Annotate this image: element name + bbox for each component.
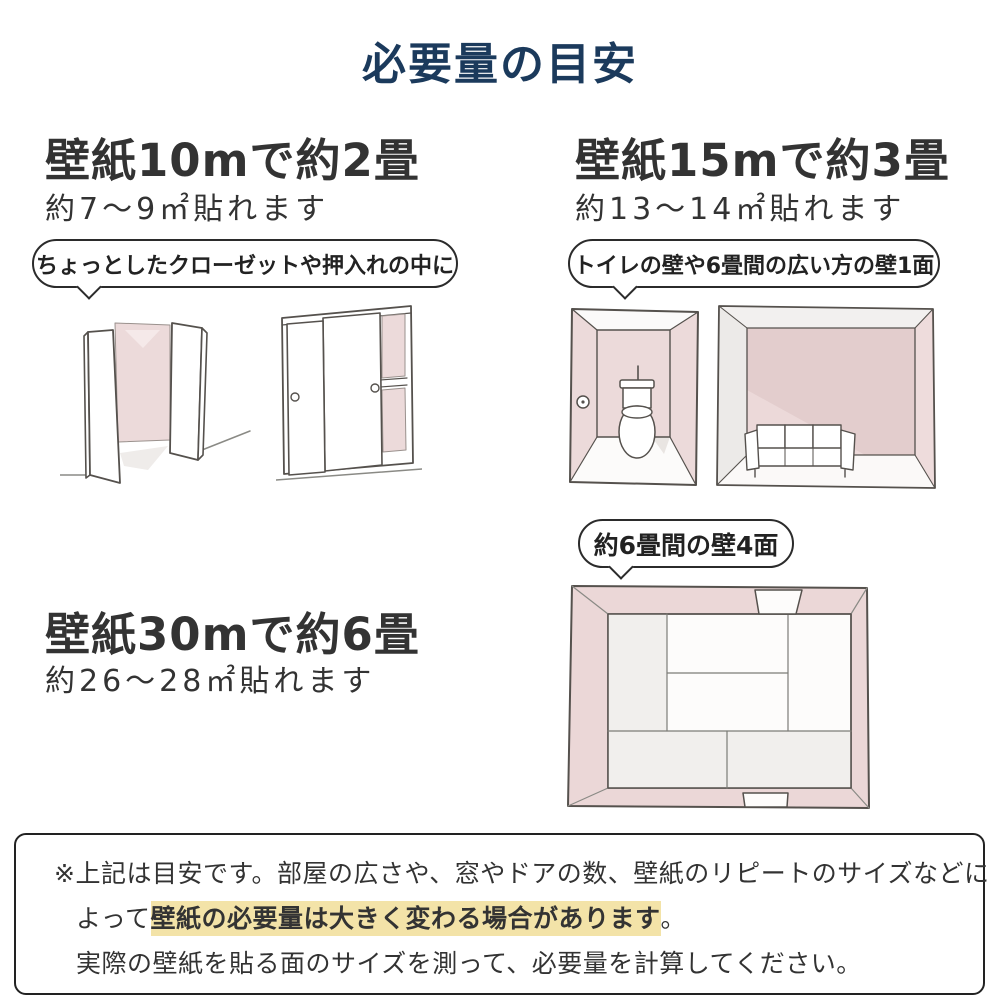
speech-bubble-closet-label: ちょっとしたクローゼットや押入れの中に	[36, 248, 454, 280]
heading-10m: 壁紙10mで約2畳	[45, 124, 420, 189]
note-line-3: 実際の壁紙を貼る面のサイズを測って、必要量を計算してください。	[54, 941, 963, 986]
speech-bubble-six-mat-walls: 約6畳間の壁4面	[578, 519, 794, 568]
subtext-30m: 約26〜28㎡貼れます	[45, 656, 375, 700]
page-title: 必要量の目安	[0, 28, 1000, 92]
closet-open-doors-illustration	[60, 298, 260, 498]
closet-sliding-doors-illustration	[276, 300, 422, 492]
note-line-2-suffix: 。	[661, 904, 687, 933]
toilet-room-illustration	[566, 302, 702, 490]
speech-bubble-toilet: トイレの壁や6畳間の広い方の壁1面	[568, 239, 940, 288]
speech-bubble-toilet-label: トイレの壁や6畳間の広い方の壁1面	[574, 248, 935, 280]
infographic-canvas: 必要量の目安 壁紙10mで約2畳 約7〜9㎡貼れます ちょっとしたクローゼットや…	[0, 0, 1000, 1000]
subtext-15m: 約13〜14㎡貼れます	[575, 184, 905, 228]
speech-bubble-six-mat-walls-label: 約6畳間の壁4面	[594, 526, 779, 562]
heading-30m: 壁紙30mで約6畳	[45, 598, 420, 663]
note-highlight: 壁紙の必要量は大きく変わる場合があります	[151, 901, 661, 936]
sofa-room-illustration	[715, 302, 940, 492]
note-line-1: ※上記は目安です。部屋の広さや、窓やドアの数、壁紙のリピートのサイズなどに	[54, 851, 963, 896]
subtext-10m: 約7〜9㎡貼れます	[45, 184, 329, 228]
note-line-2-prefix: よって	[76, 904, 151, 933]
tatami-room-top-view-illustration	[565, 578, 875, 816]
note-box: ※上記は目安です。部屋の広さや、窓やドアの数、壁紙のリピートのサイズなどに よっ…	[14, 833, 985, 995]
heading-15m: 壁紙15mで約3畳	[575, 124, 950, 189]
note-line-2: よって壁紙の必要量は大きく変わる場合があります。	[54, 896, 963, 941]
speech-bubble-closet: ちょっとしたクローゼットや押入れの中に	[32, 239, 458, 288]
